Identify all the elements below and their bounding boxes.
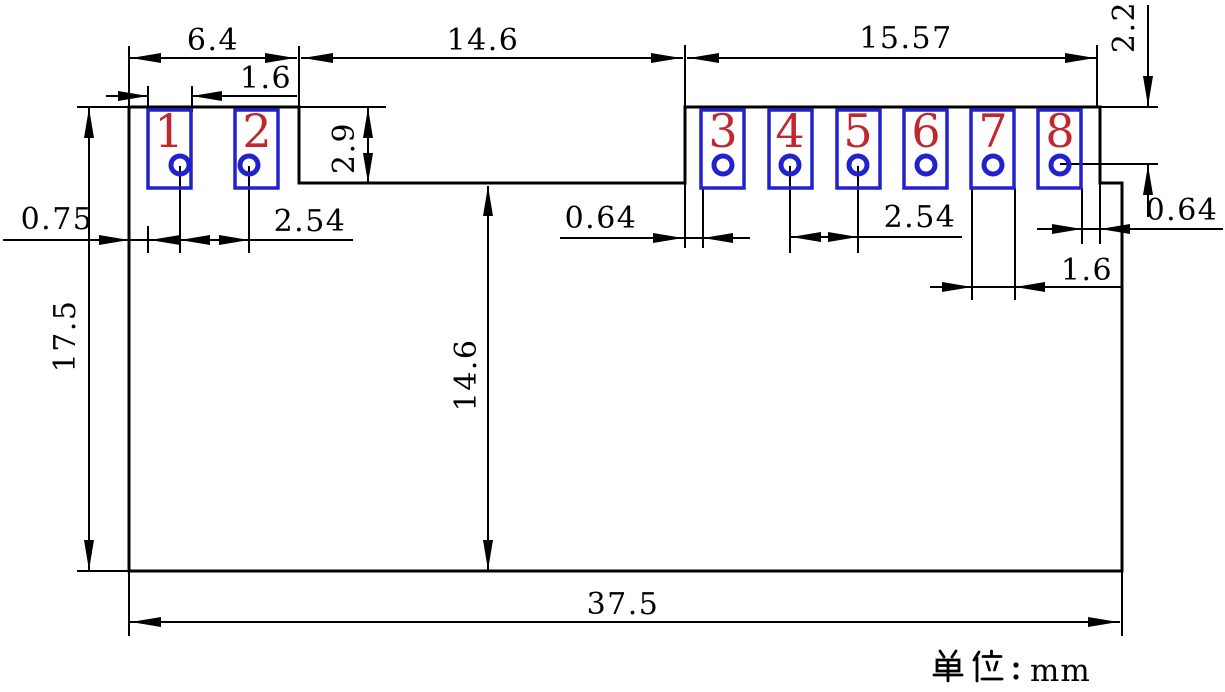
pad-6-hole	[917, 156, 935, 174]
pad-5-number: 5	[843, 104, 872, 158]
unit-colon	[1013, 662, 1018, 679]
pad-6-number: 6	[911, 104, 940, 158]
pad-4-number: 4	[775, 104, 804, 158]
dimension-lines	[3, 5, 1223, 622]
pad-7-hole	[984, 156, 1002, 174]
dim-top-left-width-label: 6.4	[187, 23, 239, 58]
dim-pad1-width-label: 1.6	[240, 61, 292, 96]
unit-note: mm	[934, 651, 1091, 689]
pad-2-number: 2	[242, 104, 271, 158]
dim-notch-bottom-to-bottom-label: 14.6	[449, 339, 484, 412]
dim-right-pin-pitch-label: 2.54	[884, 200, 957, 235]
dim-left-edge-to-pad1-label: 0.75	[21, 202, 94, 237]
unit-value: mm	[1030, 653, 1091, 689]
drawing-canvas: 1 2 3 4 5 6 7 8 6.4 1.6 14.6 15.57 0.75 …	[0, 0, 1225, 692]
dim-body-width-label: 37.5	[587, 587, 660, 622]
dim-top-edge-to-pin-row-label: 2.2	[1107, 1, 1142, 53]
pad-3-hole	[714, 156, 732, 174]
pad-8-number: 8	[1045, 104, 1074, 158]
dim-pad-height-label: 2.9	[327, 122, 362, 174]
pad-3-number: 3	[708, 104, 737, 158]
dim-right-row-width-label: 15.57	[859, 21, 952, 56]
pad-7-number: 7	[978, 104, 1007, 158]
unit-cjk-wei	[974, 651, 1002, 681]
dim-body-height-label: 17.5	[48, 300, 83, 373]
dim-pad7-width-label: 1.6	[1061, 253, 1113, 288]
pad-1-number: 1	[154, 104, 183, 158]
dim-notch-width-label: 14.6	[447, 23, 520, 58]
unit-cjk-dan	[934, 651, 962, 681]
dim-left-pin-pitch-label: 2.54	[274, 204, 347, 239]
dim-notch-to-pad3-label: 0.64	[565, 201, 638, 236]
pcb-dimension-drawing: 1 2 3 4 5 6 7 8 6.4 1.6 14.6 15.57 0.75 …	[0, 0, 1225, 692]
dim-pad8-to-right-edge-label: 0.64	[1146, 193, 1219, 228]
